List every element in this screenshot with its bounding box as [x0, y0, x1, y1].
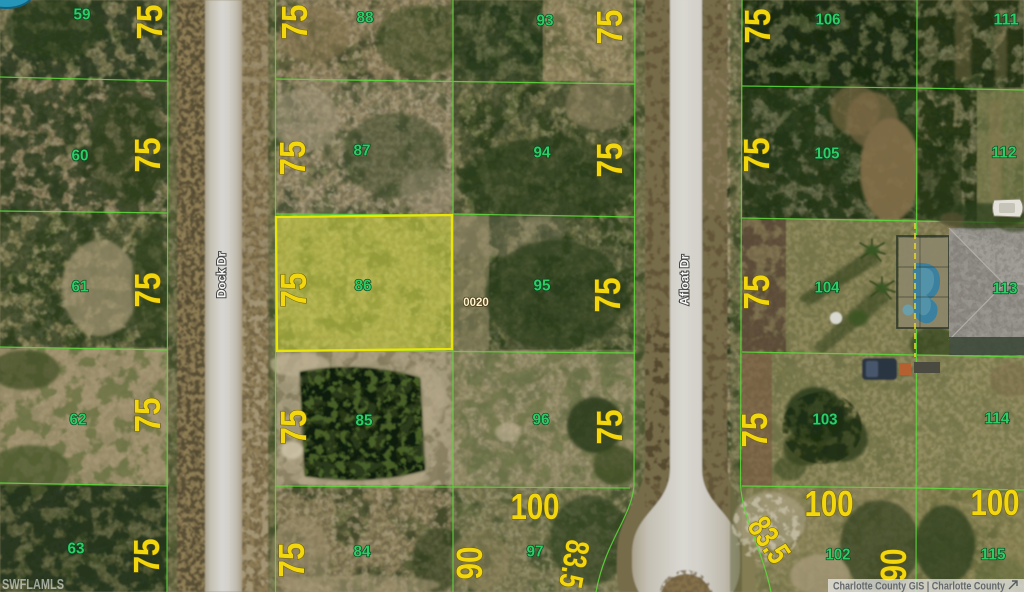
svg-text:75: 75	[273, 273, 314, 308]
svg-text:100: 100	[805, 483, 854, 524]
svg-text:62: 62	[70, 412, 87, 429]
svg-text:112: 112	[992, 145, 1017, 162]
svg-text:SWFLAMLS: SWFLAMLS	[2, 577, 64, 592]
svg-text:Charlotte County GIS | Charlot: Charlotte County GIS | Charlotte County	[833, 581, 1006, 592]
svg-text:75: 75	[274, 5, 315, 40]
svg-text:100: 100	[971, 482, 1020, 523]
svg-text:103: 103	[813, 412, 838, 429]
svg-text:113: 113	[993, 281, 1018, 298]
svg-text:75: 75	[734, 413, 775, 448]
svg-text:75: 75	[589, 10, 630, 45]
svg-text:75: 75	[736, 138, 777, 173]
svg-text:85: 85	[356, 413, 373, 430]
svg-text:Afloat Dr: Afloat Dr	[678, 254, 692, 305]
svg-text:63: 63	[68, 541, 85, 558]
svg-text:75: 75	[587, 278, 628, 313]
svg-text:75: 75	[273, 410, 314, 445]
svg-text:104: 104	[815, 280, 840, 297]
svg-text:115: 115	[981, 547, 1006, 564]
svg-text:75: 75	[272, 141, 313, 176]
svg-text:60: 60	[72, 148, 89, 165]
svg-text:59: 59	[74, 7, 91, 24]
svg-text:75: 75	[737, 9, 778, 44]
svg-text:90: 90	[873, 549, 914, 582]
svg-text:102: 102	[826, 547, 851, 564]
svg-text:105: 105	[815, 146, 840, 163]
svg-text:75: 75	[589, 143, 630, 178]
svg-text:94: 94	[534, 145, 551, 162]
svg-text:75: 75	[127, 273, 168, 308]
svg-text:75: 75	[589, 410, 630, 445]
svg-text:Dock Dr: Dock Dr	[215, 252, 229, 298]
svg-text:93: 93	[537, 13, 554, 30]
svg-text:97: 97	[527, 544, 544, 561]
svg-text:0020: 0020	[463, 297, 489, 309]
svg-text:100: 100	[511, 486, 560, 527]
svg-text:86: 86	[355, 278, 372, 295]
svg-text:111: 111	[994, 12, 1019, 29]
svg-text:90: 90	[449, 547, 490, 580]
svg-text:106: 106	[816, 12, 841, 29]
svg-text:96: 96	[533, 412, 550, 429]
svg-text:75: 75	[736, 275, 777, 310]
svg-text:95: 95	[534, 278, 551, 295]
svg-text:88: 88	[357, 10, 374, 27]
svg-text:75: 75	[127, 398, 168, 433]
svg-text:75: 75	[126, 539, 167, 574]
svg-text:75: 75	[127, 138, 168, 173]
svg-text:75: 75	[271, 543, 312, 578]
svg-text:84: 84	[354, 544, 371, 561]
svg-text:87: 87	[354, 143, 371, 160]
svg-text:75: 75	[129, 5, 170, 40]
svg-text:61: 61	[72, 279, 89, 296]
svg-text:114: 114	[985, 411, 1010, 428]
